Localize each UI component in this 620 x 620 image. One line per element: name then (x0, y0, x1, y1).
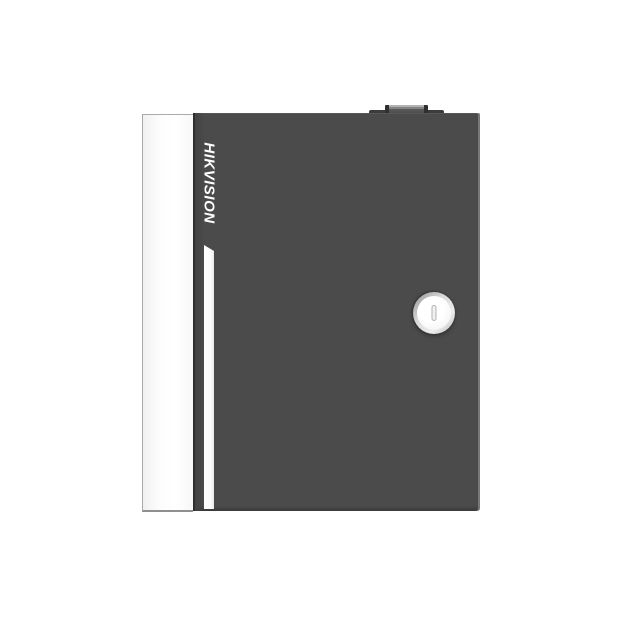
key-lock (413, 292, 455, 334)
white-side-panel (142, 114, 193, 512)
access-control-enclosure: HIKVISION (142, 105, 480, 512)
key-lock-face (417, 296, 451, 330)
accent-stripe (204, 245, 214, 509)
product-photo-canvas: HIKVISION (0, 0, 620, 620)
keyhole-slot-icon (432, 305, 437, 321)
brand-logo-text: HIKVISION (201, 142, 218, 223)
